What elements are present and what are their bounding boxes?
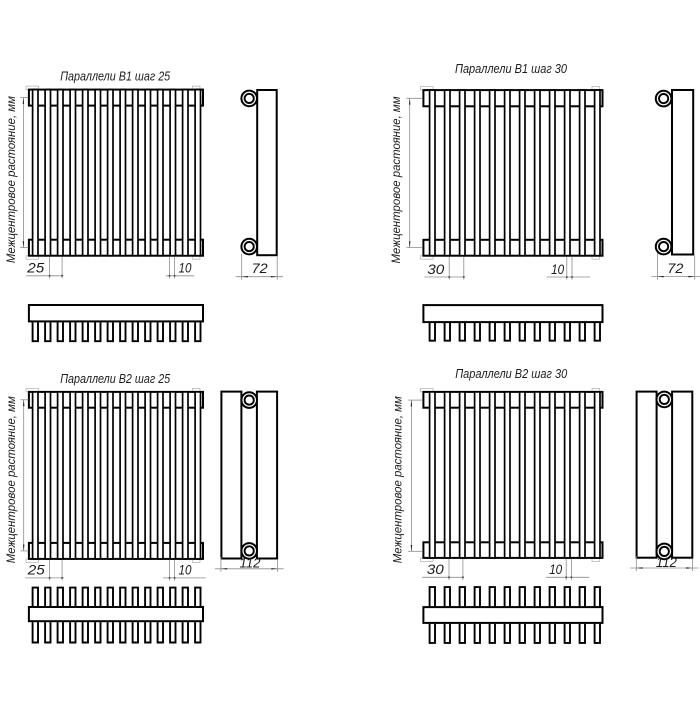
svg-text:Межцентровое растояние, мм: Межцентровое растояние, мм bbox=[6, 96, 18, 263]
svg-text:Параллели В2 шаг 25: Параллели В2 шаг 25 bbox=[60, 371, 171, 386]
svg-text:Межцентровое растояние, мм: Межцентровое растояние, мм bbox=[391, 96, 403, 263]
svg-text:Межцентровое растояние, мм: Межцентровое растояние, мм bbox=[6, 396, 18, 563]
svg-text:10: 10 bbox=[179, 563, 192, 578]
svg-text:10: 10 bbox=[549, 562, 562, 577]
svg-text:10: 10 bbox=[179, 261, 192, 276]
svg-text:30: 30 bbox=[427, 562, 445, 577]
svg-text:10: 10 bbox=[551, 262, 564, 277]
svg-text:Межцентровое растояние, мм: Межцентровое растояние, мм bbox=[393, 396, 405, 563]
svg-text:72: 72 bbox=[667, 261, 684, 276]
svg-text:25: 25 bbox=[27, 563, 46, 578]
svg-text:112: 112 bbox=[656, 555, 677, 570]
svg-text:Параллели В2 шаг 30: Параллели В2 шаг 30 bbox=[455, 366, 568, 381]
svg-text:Параллели В1 шаг 25: Параллели В1 шаг 25 bbox=[60, 69, 171, 84]
svg-text:30: 30 bbox=[427, 262, 445, 277]
svg-text:Параллели В1 шаг 30: Параллели В1 шаг 30 bbox=[455, 61, 568, 76]
svg-text:112: 112 bbox=[240, 556, 261, 571]
svg-text:25: 25 bbox=[26, 261, 45, 276]
svg-text:72: 72 bbox=[252, 261, 269, 276]
